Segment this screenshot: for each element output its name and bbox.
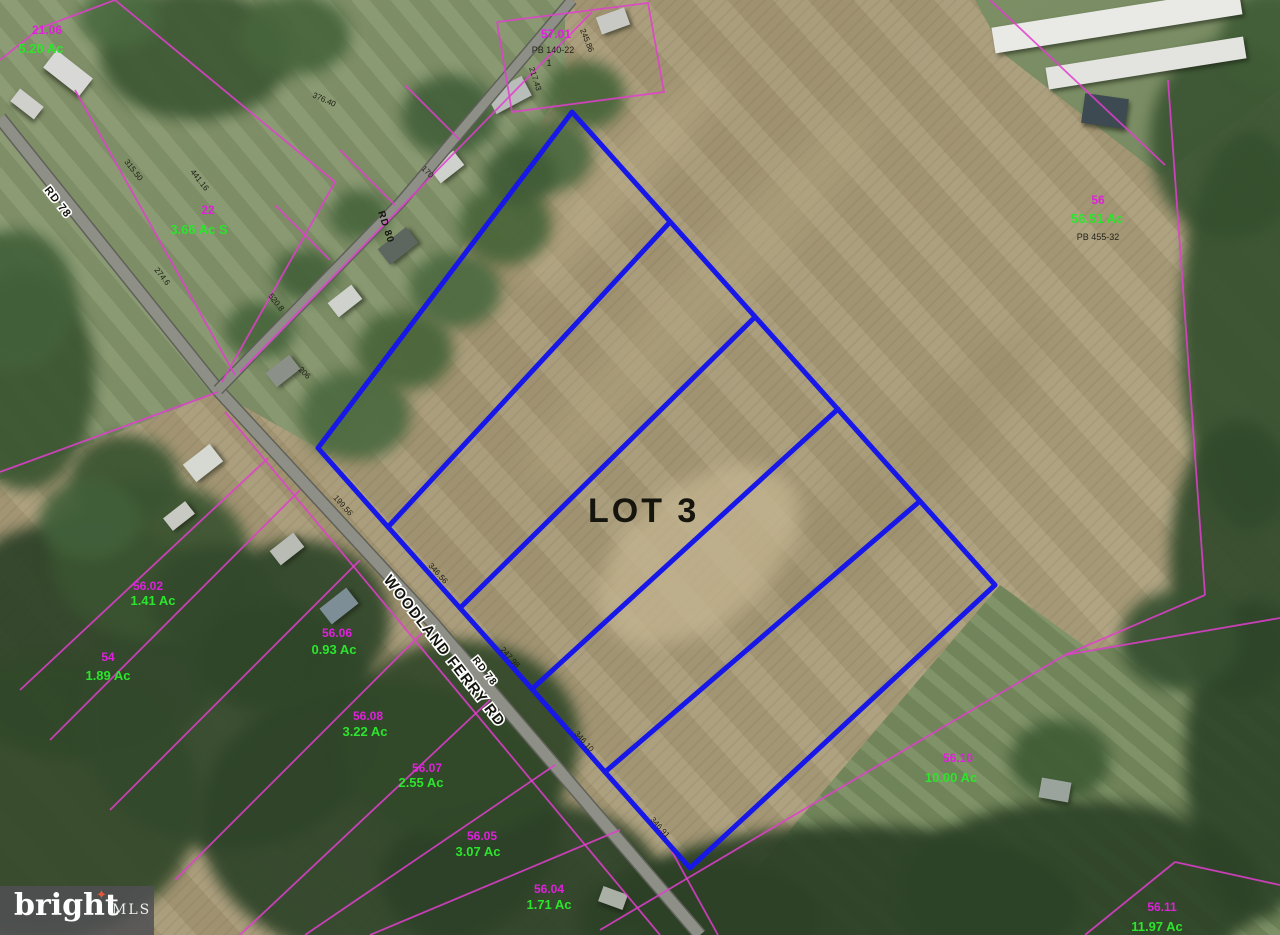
parcel-line bbox=[175, 630, 425, 880]
parcel-acreage-label: 3.22 Ac bbox=[342, 724, 387, 739]
parcel-id-label: 56.07 bbox=[412, 761, 442, 775]
parcel-line bbox=[20, 458, 268, 690]
parcel-acreage-label: 3.66 Ac S bbox=[170, 222, 228, 237]
lot-number-label: 1 bbox=[546, 58, 551, 68]
plat-book-label: PB 140-22 bbox=[532, 45, 575, 55]
parcel-line bbox=[1065, 618, 1280, 655]
parcel-line bbox=[225, 412, 660, 935]
dimension-label: 206 bbox=[297, 365, 313, 381]
star-icon: ✦ bbox=[96, 887, 107, 903]
mls-watermark: bright ✦ MLS bbox=[0, 886, 154, 935]
parcel-line bbox=[1168, 80, 1205, 595]
lot-outline bbox=[318, 112, 995, 868]
parcel-boundary-lines bbox=[0, 0, 1280, 935]
parcel-id-label: 56.06 bbox=[322, 626, 352, 640]
parcel-id-label: 56.08 bbox=[353, 709, 383, 723]
dimension-label: 520.8 bbox=[266, 292, 286, 314]
parcel-overlay: 199.56346.56247.98346.10346.91441.16315.… bbox=[0, 0, 1280, 935]
parcel-id-label: 57.01 bbox=[541, 27, 571, 41]
lot-divider-line bbox=[388, 222, 670, 527]
parcel-id-label: 56.10 bbox=[943, 751, 973, 765]
lot-divider-line bbox=[532, 409, 838, 689]
parcel-line bbox=[340, 150, 395, 205]
dimension-labels: 199.56346.56247.98346.10346.91441.16315.… bbox=[122, 27, 672, 840]
parcel-line bbox=[275, 205, 330, 260]
parcel-line bbox=[1065, 595, 1205, 655]
parcel-acreage-label: 3.07 Ac bbox=[455, 844, 500, 859]
parcel-acreage-label: 0.93 Ac bbox=[311, 642, 356, 657]
road-label: WOODLAND FERRY RD bbox=[380, 572, 509, 730]
parcel-line bbox=[0, 392, 218, 472]
parcel-id-label: 56.11 bbox=[1147, 900, 1177, 914]
parcel-id-label: 56.02 bbox=[133, 579, 163, 593]
parcel-acreage-label: 5.20 Ac bbox=[18, 41, 63, 56]
dimension-label: 217.43 bbox=[527, 66, 543, 93]
dimension-label: 441.16 bbox=[188, 168, 210, 193]
parcel-labels: 21.065.20 Ac223.66 Ac S57.01PB 140-22156… bbox=[18, 23, 1182, 934]
parcel-id-label: 56.05 bbox=[467, 829, 497, 843]
parcel-id-label: 21.06 bbox=[32, 23, 62, 37]
parcel-line bbox=[1175, 862, 1280, 885]
mls-logo-text: MLS bbox=[112, 902, 151, 918]
parcel-line bbox=[405, 85, 460, 140]
parcel-acreage-label: 11.97 Ac bbox=[1131, 919, 1183, 934]
parcel-id-label: 56.04 bbox=[534, 882, 564, 896]
lot-divider-line bbox=[460, 317, 755, 608]
aerial-map: 199.56346.56247.98346.10346.91441.16315.… bbox=[0, 0, 1280, 935]
road-surface bbox=[218, 0, 572, 390]
dimension-label: 245.86 bbox=[578, 27, 596, 54]
parcel-acreage-label: 10.00 Ac bbox=[925, 770, 977, 785]
dimension-label: 376.40 bbox=[311, 91, 338, 109]
parcel-line bbox=[990, 0, 1165, 165]
parcel-acreage-label: 1.89 Ac bbox=[85, 668, 130, 683]
parcel-acreage-label: 1.71 Ac bbox=[526, 897, 571, 912]
parcel-line bbox=[600, 655, 1065, 930]
parcel-acreage-label: 56.51 Ac bbox=[1071, 211, 1123, 226]
parcel-acreage-label: 1.41 Ac bbox=[130, 593, 175, 608]
parcel-line bbox=[50, 490, 300, 740]
dimension-label: 274.6 bbox=[152, 266, 172, 288]
plat-book-label: PB 455-32 bbox=[1077, 232, 1120, 242]
parcel-acreage-label: 2.55 Ac bbox=[398, 775, 443, 790]
parcel-id-label: 54 bbox=[101, 650, 115, 664]
lot-divider-line bbox=[605, 501, 920, 772]
parcel-id-label: 56 bbox=[1091, 193, 1105, 207]
lot-label: LOT 3 bbox=[588, 492, 699, 531]
parcel-id-label: 22 bbox=[201, 203, 215, 217]
parcel-line bbox=[115, 0, 335, 182]
